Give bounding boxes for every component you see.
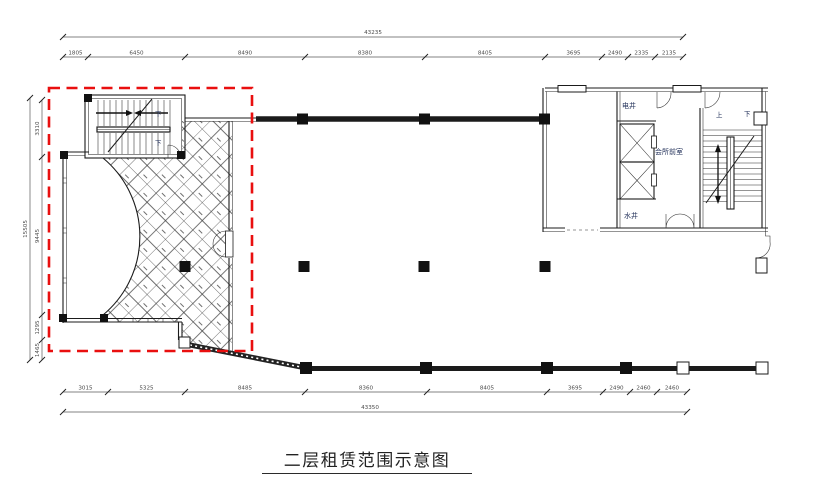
stair-up-label: 上 [716, 110, 723, 119]
dimension-label: 2135 [662, 51, 677, 57]
dimension-label: 8485 [238, 386, 253, 392]
dimension-column-left: 3310944512951465 [35, 97, 45, 363]
dimension-label: 2460 [665, 386, 680, 392]
dimension-label: 43235 [364, 30, 382, 36]
dimension-label: 1465 [35, 342, 41, 357]
dimension-label: 8380 [358, 51, 373, 57]
dimension-label: 8405 [480, 386, 495, 392]
dimension-label: 3015 [78, 386, 93, 392]
dimension-label: 2335 [634, 51, 649, 57]
dimension-label: 9445 [35, 228, 41, 243]
dimension-label: 8405 [478, 51, 493, 57]
stair-core-left: 下 下 [85, 95, 185, 158]
dimension-label: 3695 [566, 51, 581, 57]
core-doors [657, 92, 770, 273]
dimension-label: 2490 [608, 51, 623, 57]
dimension-label: 2460 [636, 386, 651, 392]
dimension-label: 43350 [361, 405, 379, 411]
dimension-row-bottom: 301553258485836084053695249024602460 [60, 386, 690, 396]
stair-down-label-upper: 下 [155, 110, 162, 118]
dimension-bottom-total: 43350 [60, 405, 690, 415]
elevator-bank [620, 124, 657, 199]
dimension-top-total: 43235 [60, 30, 686, 40]
room-label-club-anteroom: 会所前室 [655, 147, 683, 156]
stair-down-label-right: 下 [744, 110, 751, 118]
dimension-label: 2490 [609, 386, 624, 392]
dimension-label: 5325 [139, 386, 154, 392]
dimension-label: 3310 [35, 121, 41, 136]
dimension-label: 3695 [568, 386, 583, 392]
floor-plan-page: 下 下 上 下 [0, 0, 814, 494]
dimension-label: 8490 [238, 51, 253, 57]
dimension-label: 6450 [129, 51, 144, 57]
lease-hatch-area [103, 121, 232, 351]
dimension-label: 1295 [35, 320, 41, 335]
stair-down-label-lower: 下 [155, 139, 162, 147]
room-label-water-shaft: 水井 [624, 211, 638, 220]
dimension-label: 15505 [23, 220, 29, 238]
dimension-label: 1805 [68, 51, 83, 57]
floor-plan-canvas: 下 下 上 下 [0, 0, 814, 494]
stair-core-right: 上 下 [703, 110, 762, 209]
dimension-left-total: 15505 [23, 95, 33, 363]
dimension-row-top: 180564508490838084053695249023352135 [60, 51, 686, 61]
dimension-label: 8360 [359, 386, 374, 392]
room-label-electrical-shaft: 电井 [622, 101, 636, 110]
plan-title: 二层租赁范围示意图 [262, 446, 472, 474]
